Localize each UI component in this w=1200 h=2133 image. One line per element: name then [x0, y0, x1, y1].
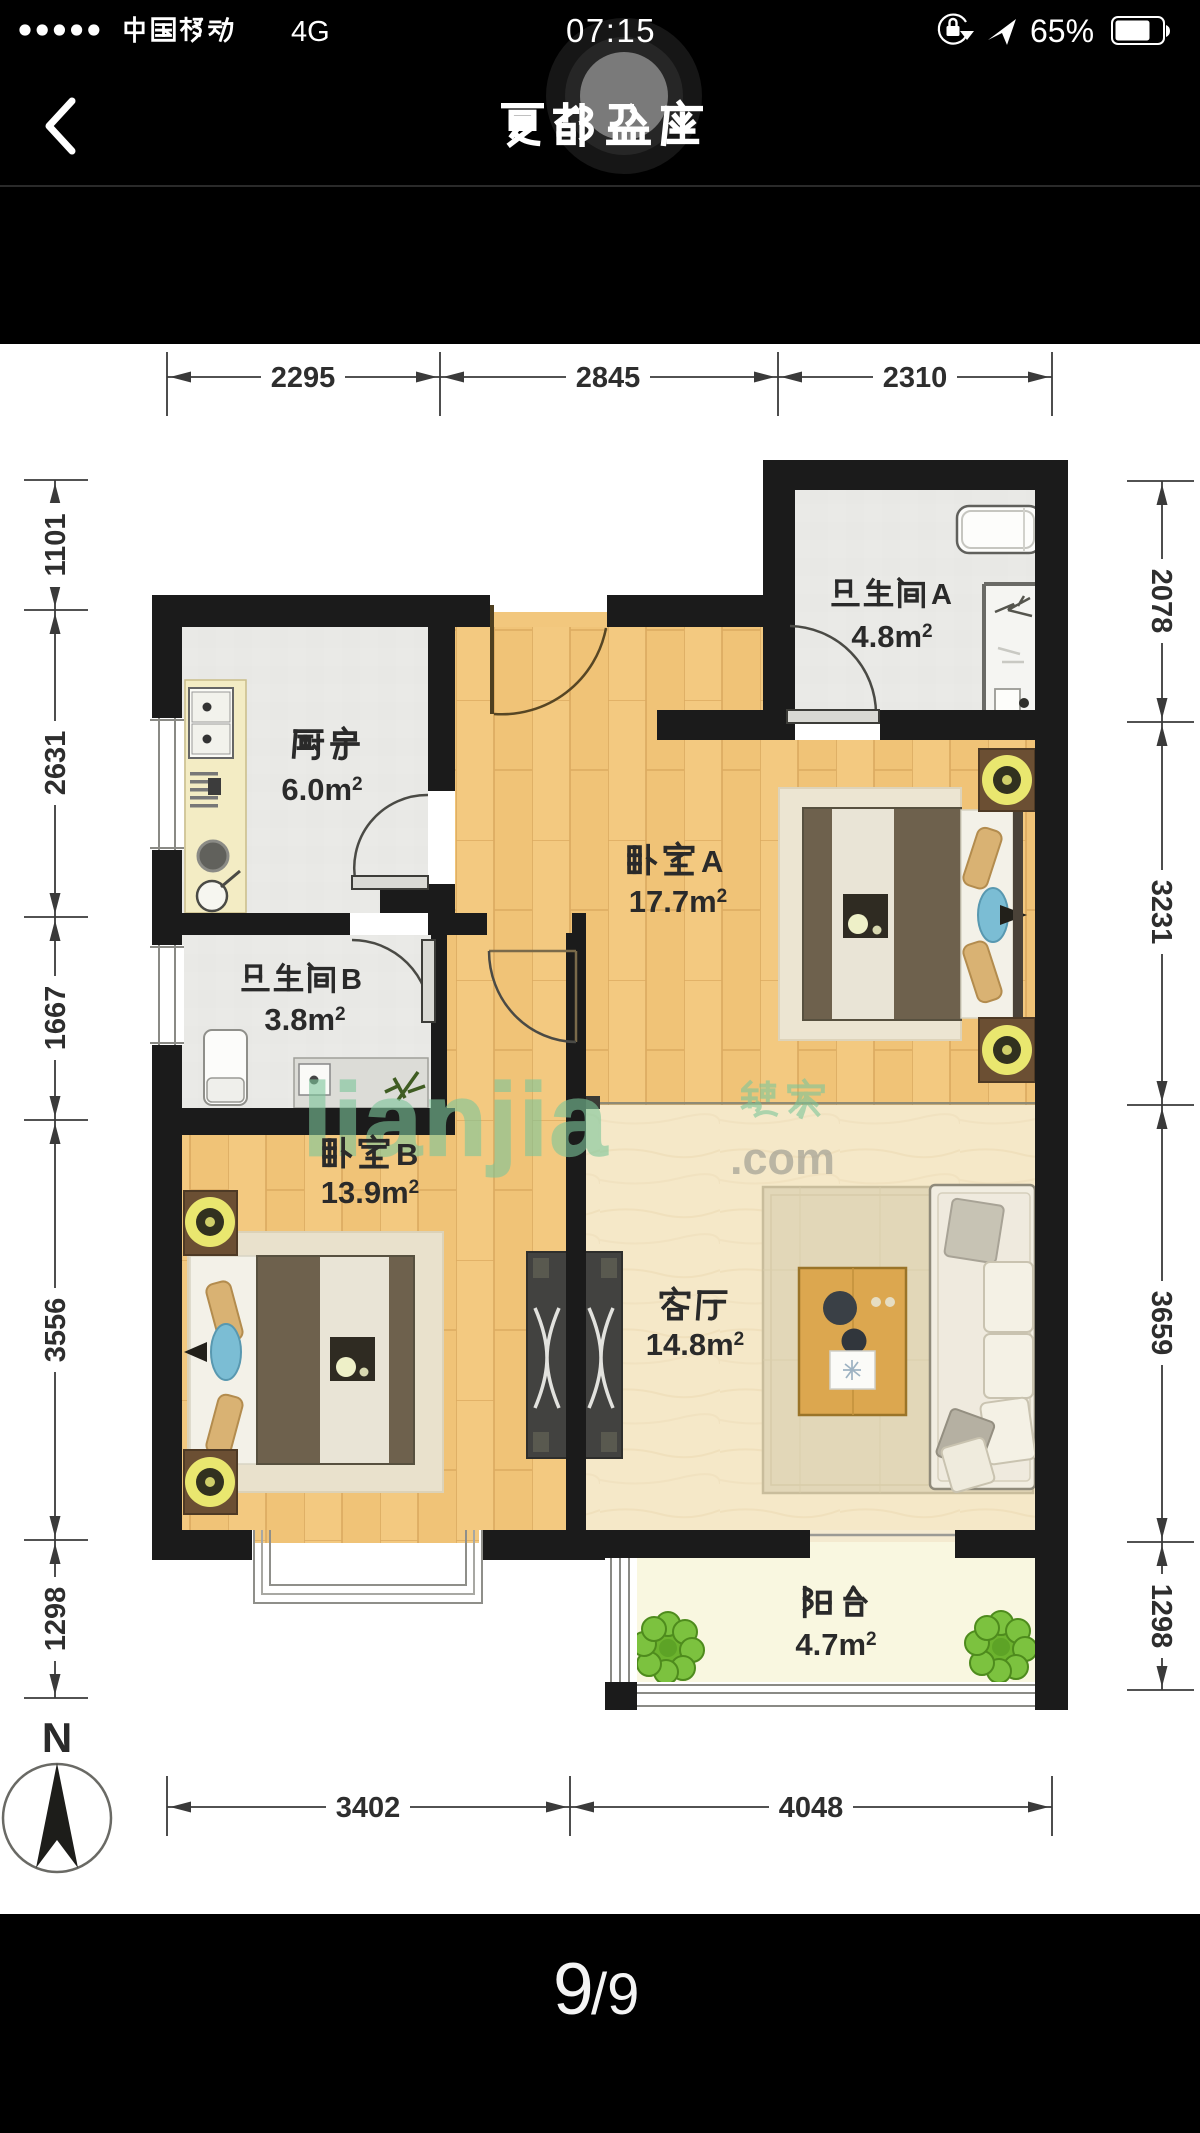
svg-text:07:15: 07:15 [566, 12, 656, 49]
svg-text:3402: 3402 [336, 1792, 401, 1824]
svg-text:2845: 2845 [576, 362, 641, 394]
svg-text:3.8m2: 3.8m2 [264, 1002, 345, 1037]
svg-text:4.7m2: 4.7m2 [795, 1627, 876, 1662]
svg-text:9: 9 [553, 1949, 594, 2030]
svg-text:.com: .com [730, 1133, 835, 1184]
svg-text:A: A [701, 844, 723, 879]
svg-text:2310: 2310 [883, 362, 948, 394]
svg-text:3659: 3659 [1145, 1291, 1177, 1356]
svg-text:6.0m2: 6.0m2 [281, 772, 362, 807]
svg-text:N: N [42, 1714, 72, 1761]
svg-text:2295: 2295 [271, 362, 336, 394]
svg-text:A: A [931, 579, 952, 611]
svg-text:lianjia: lianjia [303, 1062, 609, 1177]
svg-text:2078: 2078 [1145, 569, 1177, 634]
svg-text:1101: 1101 [40, 514, 72, 577]
svg-text:1298: 1298 [1145, 1584, 1177, 1649]
svg-text:B: B [396, 1137, 418, 1172]
svg-text:17.7m2: 17.7m2 [629, 884, 727, 919]
svg-text:13.9m2: 13.9m2 [321, 1175, 419, 1210]
svg-text:1298: 1298 [40, 1587, 72, 1652]
svg-text:14.8m2: 14.8m2 [646, 1327, 744, 1362]
svg-text:4G: 4G [291, 16, 330, 48]
svg-text:4048: 4048 [779, 1792, 844, 1824]
svg-text:B: B [341, 964, 362, 996]
svg-text:4.8m2: 4.8m2 [851, 619, 932, 654]
svg-text:1667: 1667 [40, 986, 72, 1051]
svg-text:3556: 3556 [40, 1298, 72, 1363]
svg-text:2631: 2631 [40, 731, 72, 796]
svg-text:65%: 65% [1030, 13, 1094, 49]
svg-text:/9: /9 [591, 1962, 639, 2027]
svg-text:3231: 3231 [1145, 880, 1177, 945]
